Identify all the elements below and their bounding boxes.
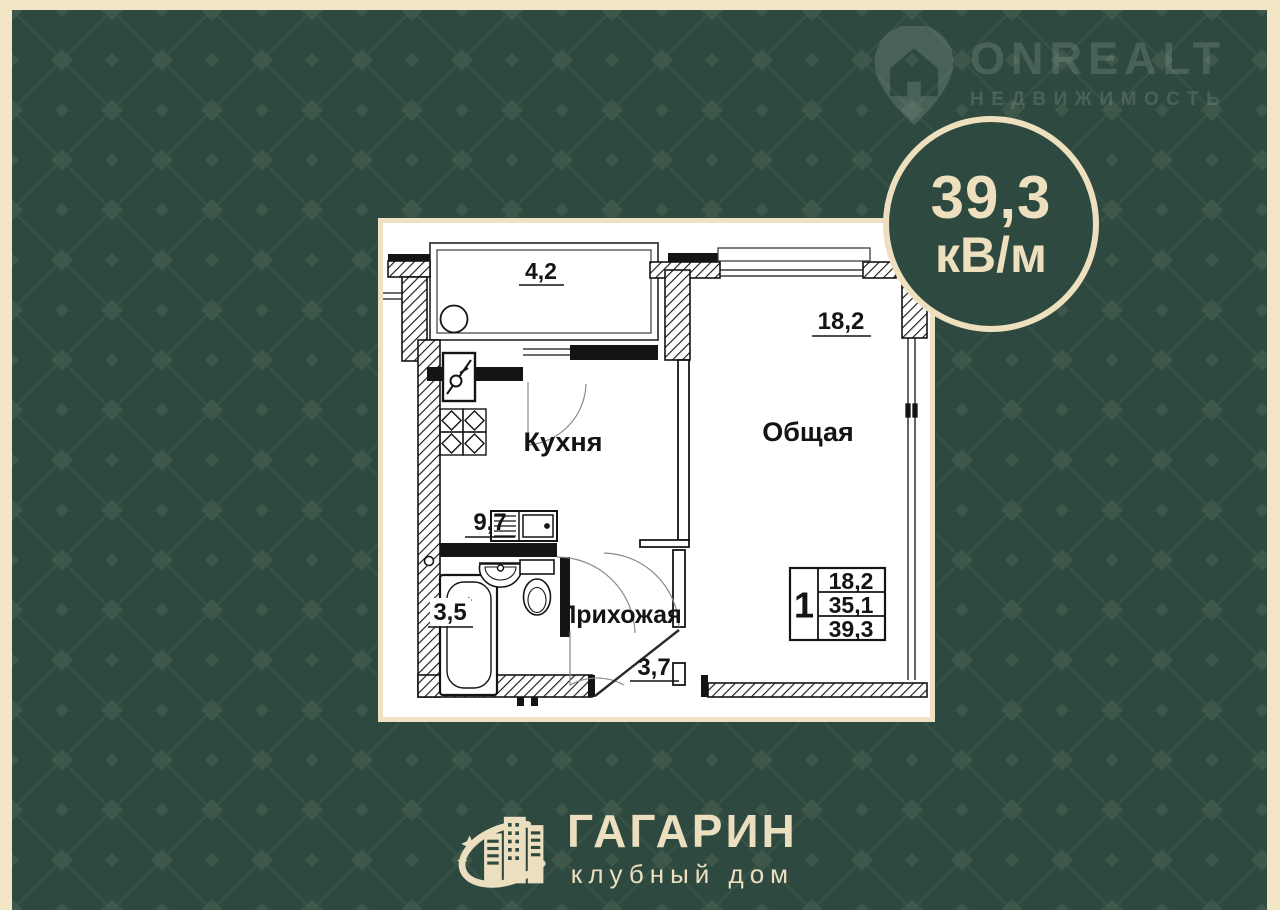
table-floor-area: 35,1: [829, 592, 874, 618]
bathtub-icon: [440, 575, 497, 695]
developer-logo: ГАГАРИН клубный дом: [455, 793, 798, 903]
living-area-value: 18,2: [818, 308, 865, 335]
kitchen-label: Кухня: [524, 427, 603, 457]
stove-icon: [440, 409, 486, 455]
poster: ONREALT НЕДВИЖИМОСТЬ: [0, 0, 1280, 910]
watermark-brand: ONREALT: [970, 36, 1227, 81]
table-total-area: 39,3: [829, 616, 874, 642]
badge-unit: кВ/м: [935, 229, 1047, 282]
buildings-icon: [455, 796, 559, 900]
floor-plan-card: 1 18,2 35,1 39,3 4,2 18,2 Кухня Общая 9,…: [378, 218, 935, 722]
wall-knob: [425, 557, 434, 566]
partition-walls: [640, 360, 689, 685]
hallway-label: Прихожая: [558, 601, 681, 629]
toilet-icon: [520, 560, 554, 615]
table-rooms-count: 1: [794, 585, 814, 626]
developer-name: ГАГАРИН: [567, 806, 798, 857]
developer-subtitle: клубный дом: [571, 859, 794, 890]
living-label: Общая: [762, 417, 854, 447]
watermark-tagline: НЕДВИЖИМОСТЬ: [970, 89, 1227, 111]
hallway-area-value: 3,7: [637, 654, 670, 681]
table-living-area: 18,2: [829, 568, 874, 594]
onrealt-watermark: ONREALT НЕДВИЖИМОСТЬ: [858, 24, 1258, 124]
balcony-area: 4,2: [525, 258, 557, 284]
onrealt-pin-icon: [866, 26, 962, 128]
badge-area-value: 39,3: [931, 166, 1052, 229]
water-heater-icon: [441, 306, 468, 333]
summary-table: 1 18,2 35,1 39,3: [790, 568, 885, 642]
kitchen-area-value: 9,7: [473, 509, 506, 536]
electrical-panel-icon: [443, 353, 475, 401]
area-badge: 39,3 кВ/м: [883, 116, 1099, 332]
bathroom-area-value: 3,5: [433, 599, 466, 626]
floor-plan: 1 18,2 35,1 39,3 4,2 18,2 Кухня Общая 9,…: [383, 223, 930, 717]
